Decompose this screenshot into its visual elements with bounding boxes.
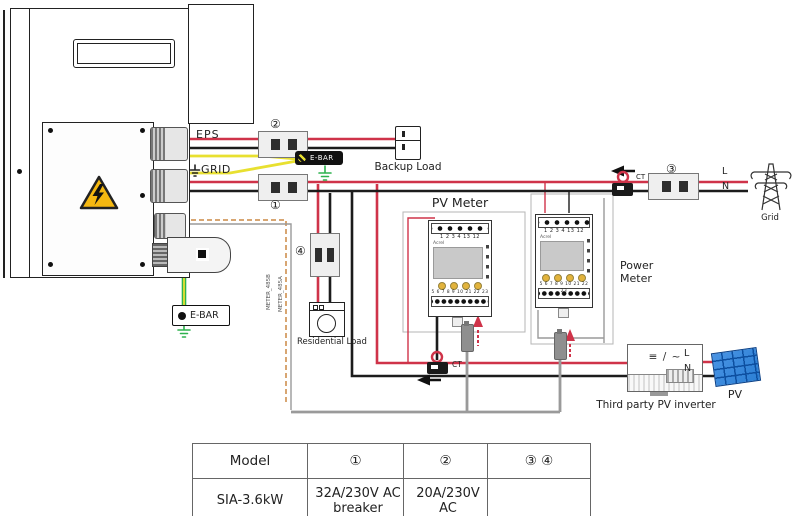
inverter-fold-line <box>29 9 30 277</box>
grid-tower-icon <box>751 164 791 210</box>
meter-buttons <box>536 274 592 281</box>
cell-breaker1: 32A/230V AC breaker <box>308 479 404 516</box>
inverter-display-inner <box>77 43 171 64</box>
power-meter-bottom-terminals: 5 6 7 8 9 10 21 22 23 <box>536 281 592 288</box>
terminal-dots <box>431 296 489 307</box>
pv-meter-top-terminals: 1 2 3 4 13 12 <box>429 234 491 241</box>
terminal-dots <box>538 217 590 228</box>
breaker-4-label: ④ <box>295 244 306 258</box>
third-party-pv-inverter: ≡ / ~ <box>627 344 703 392</box>
grid-line-label: L <box>722 166 727 177</box>
power-meter-title: Power Meter <box>620 259 666 285</box>
arrow-left-icon <box>611 166 635 177</box>
inverter-side-panel <box>188 4 254 124</box>
third-party-inverter-label: Third party PV inverter <box>594 399 718 411</box>
eps-gland <box>150 127 188 161</box>
ground-icon <box>319 166 331 180</box>
inverter-foot <box>650 392 668 396</box>
grid-port-label: GRID <box>201 163 231 176</box>
breaker-3 <box>648 173 699 200</box>
ct2-label: CT <box>452 360 462 369</box>
inverter-wiring-compartment <box>42 122 154 276</box>
screw <box>17 169 22 174</box>
breaker-1 <box>258 174 308 201</box>
arrow-left-icon <box>417 375 441 386</box>
screw <box>140 262 145 267</box>
screw <box>48 262 53 267</box>
fridge-icon <box>395 126 421 160</box>
breaker-3-label: ③ <box>666 162 677 176</box>
cell-breaker34 <box>488 479 591 516</box>
rj45-plug-icon <box>461 324 474 352</box>
ct-clamp-icon <box>612 172 633 196</box>
cell-model: SIA-3.6kW <box>193 479 308 516</box>
pv-meter-screen <box>433 247 483 279</box>
meter-indicators <box>486 245 490 279</box>
washing-machine-icon <box>309 302 345 337</box>
earth-bar-top: E-BAR <box>295 151 343 165</box>
header-breaker34: ③ ④ <box>488 444 591 479</box>
residential-load-label: Residential Load <box>297 337 357 347</box>
meter-indicators <box>587 239 591 273</box>
hazard-dot-icon <box>298 154 306 162</box>
qr-code-icon <box>196 248 209 261</box>
rj45-plug-icon <box>554 332 567 360</box>
com-gland <box>154 213 186 239</box>
pv-line-label: L <box>684 348 689 359</box>
grid-neutral-label: N <box>722 181 729 192</box>
warning-icon <box>79 175 119 211</box>
inverter-display <box>73 39 175 68</box>
pv-meter-bottom-terminals: 5 6 7 8 9 10 21 22 23 <box>429 289 491 296</box>
header-model: Model <box>193 444 308 479</box>
pv-meter-title: PV Meter <box>424 195 496 210</box>
earth-bar-bottom-label: E-BAR <box>190 310 219 321</box>
pv-meter: 1 2 3 4 13 12 Acrel 5 6 7 8 9 10 21 22 2… <box>428 220 492 317</box>
inverter-edge-line <box>3 10 5 278</box>
power-meter-brand: Acrel <box>540 235 551 240</box>
din-clip <box>558 308 569 318</box>
ct1-label: CT <box>636 173 645 181</box>
table-header-row: Model ① ② ③ ④ <box>193 444 591 479</box>
screw <box>140 193 145 198</box>
ct-clamp-icon <box>427 352 448 374</box>
earth-bar-top-label: E-BAR <box>310 154 334 162</box>
wifi-dongle <box>167 237 231 273</box>
meter-485a-label: METER_485A <box>278 264 286 324</box>
power-meter: 1 2 3 4 13 12 Acrel 5 6 7 8 9 10 21 22 2… <box>535 214 593 308</box>
screw <box>140 128 145 133</box>
breaker-2-label: ② <box>270 117 281 131</box>
table-data-row: SIA-3.6kW 32A/230V AC breaker 20A/230V A… <box>193 479 591 516</box>
wiring-diagram: EPS GRID ② ① ③ ④ E-BAR E-BAR Backup Load <box>0 0 795 516</box>
terminal-dots <box>431 223 489 234</box>
pv-meter-brand: Acrel <box>433 241 444 246</box>
header-breaker2: ② <box>404 444 488 479</box>
screw <box>48 128 53 133</box>
pv-panel-icon <box>711 347 761 387</box>
cell-breaker2: 20A/230V AC breaker <box>404 479 488 516</box>
earth-bar-bottom: E-BAR <box>172 305 230 326</box>
grid-label: Grid <box>746 213 794 223</box>
backup-load-label: Backup Load <box>373 161 443 173</box>
pv-neutral-label: N <box>684 363 691 374</box>
ground-icon <box>191 165 200 176</box>
power-meter-screen <box>540 241 584 271</box>
pv-label: PV <box>718 388 752 401</box>
spec-table: Model ① ② ③ ④ SIA-3.6kW 32A/230V AC brea… <box>192 443 591 516</box>
eps-port-label: EPS <box>196 128 220 141</box>
breaker-4 <box>310 233 340 277</box>
meter-buttons <box>429 282 491 289</box>
breaker-1-label: ① <box>270 198 281 212</box>
terminal-dot-icon <box>178 312 186 320</box>
header-breaker1: ① <box>308 444 404 479</box>
meter-485b-label: METER_485B <box>266 262 274 322</box>
power-meter-top-terminals: 1 2 3 4 13 12 <box>536 228 592 235</box>
grid-gland <box>150 169 188 203</box>
arrow-up-icon <box>473 315 483 346</box>
